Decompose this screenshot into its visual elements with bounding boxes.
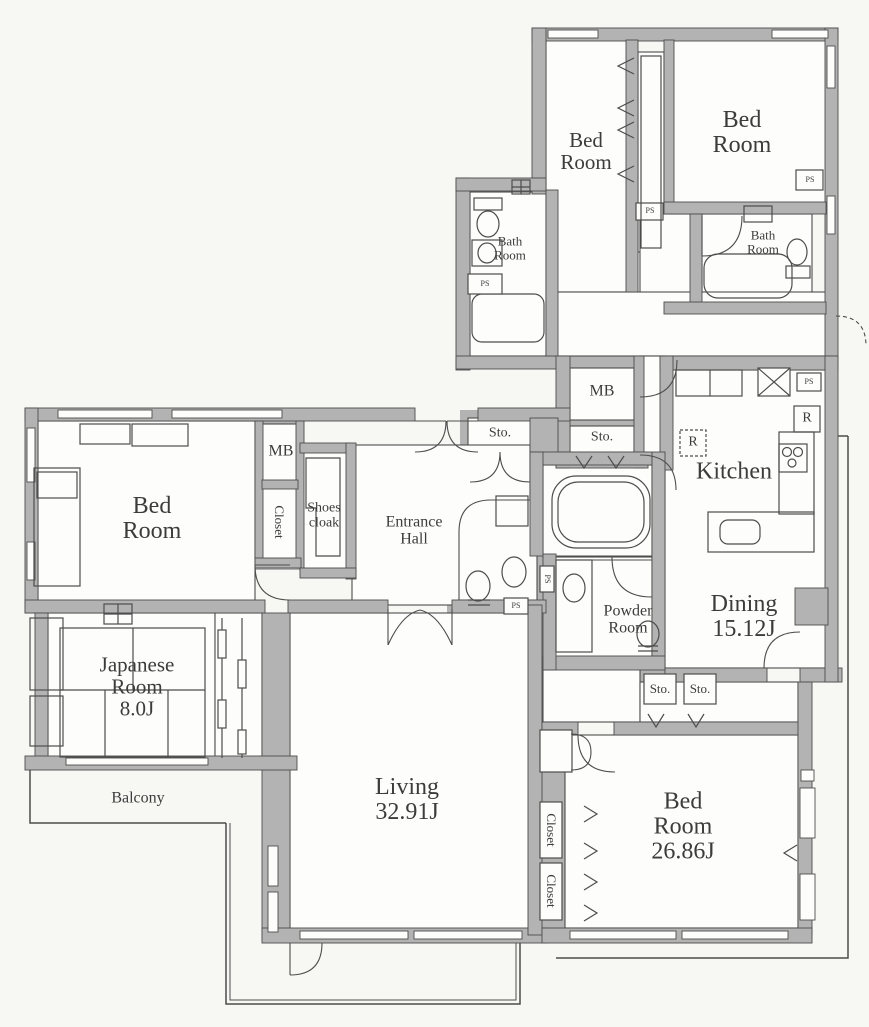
pipe-shaft-label: PS: [543, 575, 551, 584]
storage-label: Sto.: [690, 682, 711, 696]
room-label-japanese-room: Japanese Room 8.0J: [100, 654, 175, 719]
room-label-dining: Dining 15.12J: [711, 592, 778, 642]
floor-plan: Bed Room Bed Room Bath Room Bath Room Ki…: [0, 0, 869, 1027]
room-label-kitchen: Kitchen: [696, 460, 772, 485]
room-label-bedroom-west: Bed Room: [123, 494, 182, 544]
room-label-bedroom-main: Bed Room 26.86J: [651, 790, 714, 865]
room-label-living: Living 32.91J: [375, 775, 439, 825]
storage-label: Sto.: [489, 427, 511, 442]
mb-label: MB: [269, 444, 294, 461]
mb-label: MB: [590, 384, 615, 401]
room-label-balcony: Balcony: [111, 791, 164, 808]
closet-label: Closet: [544, 813, 558, 846]
closet-label: Closet: [544, 874, 558, 907]
room-label-entrance-hall: Entrance Hall: [386, 514, 443, 547]
stove-icon: [779, 444, 807, 472]
pipe-shaft-label: PS: [512, 602, 521, 610]
pipe-shaft-label: PS: [806, 176, 815, 184]
room-label-bathroom-right: Bath Room: [747, 228, 779, 255]
room-label-bedroom-top-left: Bed Room: [560, 130, 611, 174]
storage-label: Sto.: [650, 682, 671, 696]
room-label-bathroom-left: Bath Room: [494, 234, 526, 261]
storage-label: Sto.: [591, 431, 613, 446]
pipe-shaft-label: PS: [481, 280, 490, 288]
closet-label: Closet: [272, 505, 286, 538]
pipe-shaft-label: PS: [805, 378, 814, 386]
refrigerator-label: R: [802, 412, 811, 427]
refrigerator-label: R: [688, 436, 697, 451]
room-label-bedroom-top-right: Bed Room: [713, 108, 772, 158]
room-label-powder-room: Powder Room: [604, 603, 653, 636]
room-label-shoes-cloak: Shoes cloak: [307, 501, 340, 530]
pipe-shaft-label: PS: [646, 207, 655, 215]
